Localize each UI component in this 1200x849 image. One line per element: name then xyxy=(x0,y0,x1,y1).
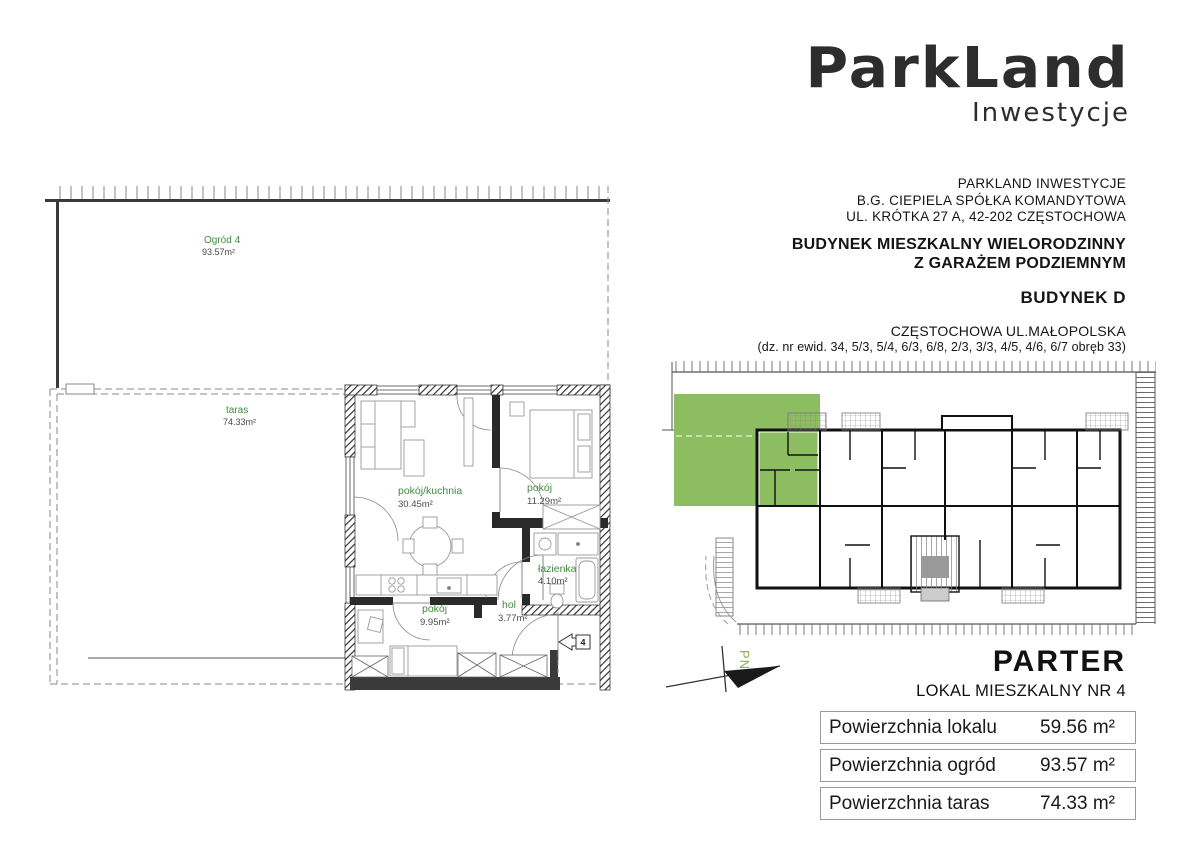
furniture xyxy=(352,398,600,677)
room-label-living: pokój/kuchnia xyxy=(398,485,462,497)
row-value: 74.33 m² xyxy=(1040,793,1115,815)
logo-brand: ParkLand xyxy=(806,40,1130,98)
company-name: PARKLAND INWESTYCJE xyxy=(758,176,1126,193)
stairwell xyxy=(911,536,959,601)
entrance-marker: 4 xyxy=(559,634,590,650)
garden-area: Ogród 4 93.57m² xyxy=(45,186,610,388)
entrance-number: 4 xyxy=(580,638,585,648)
room-label-bedroom2: pokój xyxy=(422,603,447,615)
logo-subtitle: Inwestycje xyxy=(818,98,1130,128)
room-area-bathroom: 4.10m² xyxy=(538,576,568,587)
header-info: PARKLAND INWESTYCJE B.G. CIEPIELA SPÓŁKA… xyxy=(758,176,1126,354)
site-access xyxy=(706,538,736,624)
company-address: UL. KRÓTKA 27 A, 42-202 CZĘSTOCHOWA xyxy=(758,209,1126,226)
row-label: Powierzchnia taras xyxy=(829,793,990,815)
row-value: 93.57 m² xyxy=(1040,755,1115,777)
table-row: Powierzchnia lokalu 59.56 m² xyxy=(820,711,1136,744)
garden-label: Ogród 4 xyxy=(204,235,241,246)
room-label-bedroom: pokój xyxy=(527,482,552,494)
floor-summary-title: PARTER LOKAL MIESZKALNY NR 4 xyxy=(916,645,1126,701)
row-label: Powierzchnia ogród xyxy=(829,755,996,777)
room-label-bathroom: łazienka xyxy=(538,563,577,575)
room-area-living: 30.45m² xyxy=(398,499,433,510)
company-legal: B.G. CIEPIELA SPÓŁKA KOMANDYTOWA xyxy=(758,193,1126,210)
building-name: BUDYNEK D xyxy=(758,288,1126,308)
row-value: 59.56 m² xyxy=(1040,717,1115,739)
north-label: PN xyxy=(737,650,752,670)
garden-area-value: 93.57m² xyxy=(202,247,235,257)
logo: ParkLand Inwestycje xyxy=(818,40,1130,128)
room-area-bedroom2: 9.95m² xyxy=(420,617,450,628)
table-row: Powierzchnia ogród 93.57 m² xyxy=(820,749,1136,782)
building-outline xyxy=(757,413,1128,603)
room-area-bedroom: 11.29m² xyxy=(527,496,561,507)
table-row: Powierzchnia taras 74.33 m² xyxy=(820,787,1136,820)
site-plan xyxy=(660,355,1165,645)
area-table: Powierzchnia lokalu 59.56 m² Powierzchni… xyxy=(820,711,1136,825)
floor-title: PARTER xyxy=(916,645,1126,679)
room-area-hall: 3.77m² xyxy=(498,613,528,624)
building-title-line1: BUDYNEK MIESZKALNY WIELORODZINNY xyxy=(758,235,1126,255)
terrace-area-value: 74.33m² xyxy=(223,417,256,427)
plots-line: (dz. nr ewid. 34, 5/3, 5/4, 6/3, 6/8, 2/… xyxy=(758,340,1126,354)
room-label-hall: hol xyxy=(502,599,516,611)
main-floor-plan: Ogród 4 93.57m² taras 74.33m² xyxy=(40,178,625,700)
terrace-label: taras xyxy=(226,405,248,416)
row-label: Powierzchnia lokalu xyxy=(829,717,997,739)
north-arrow: PN xyxy=(660,640,790,710)
building-title-line2: Z GARAŻEM PODZIEMNYM xyxy=(758,254,1126,274)
unit-title: LOKAL MIESZKALNY NR 4 xyxy=(916,682,1126,701)
location-line: CZĘSTOCHOWA UL.MAŁOPOLSKA xyxy=(758,323,1126,339)
